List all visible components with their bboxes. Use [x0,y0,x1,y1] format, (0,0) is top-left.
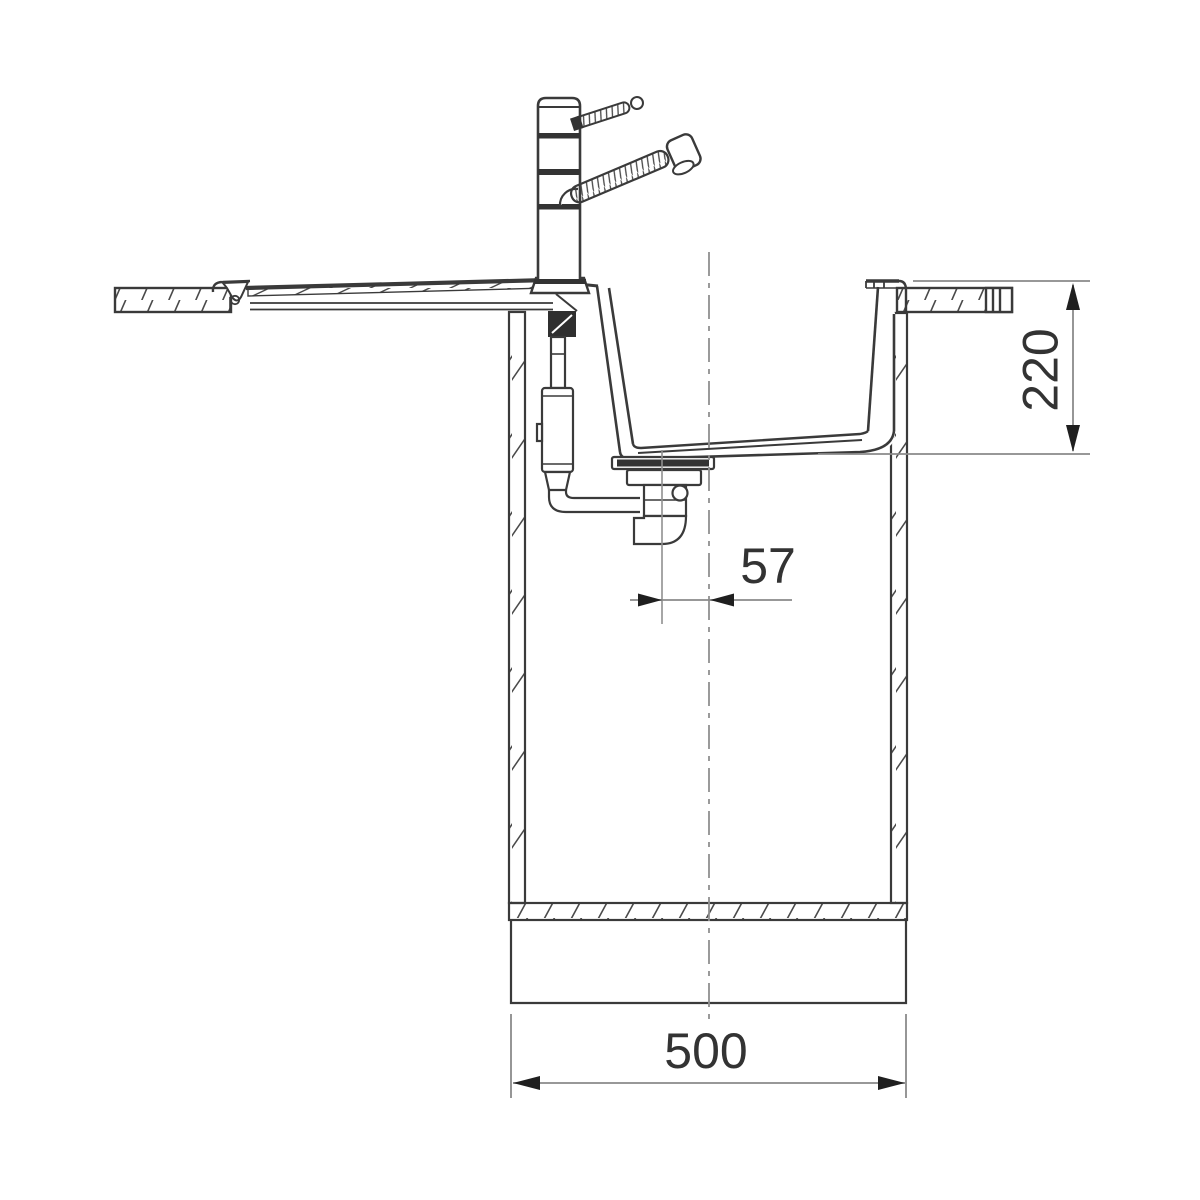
dimension-label-width: 500 [664,1023,747,1079]
lever-tip [631,97,643,109]
hose-elbow [549,490,640,512]
dimension-label-drain-offset: 57 [740,538,796,594]
faucet-shank [556,294,577,311]
dimension-drain-offset-57: 57 [630,538,796,607]
faucet [531,97,704,293]
trap-elbow [634,516,686,544]
arrow-down [1066,425,1080,452]
trap-knob [673,486,688,501]
arrow-left [710,594,734,607]
cabinet-bottom-shelf [509,903,907,920]
technical-drawing-page: 220 57 500 [0,0,1200,1200]
arrow-right [878,1076,905,1090]
drain-assembly [612,457,714,544]
sink-section-drawing: 220 57 500 [0,0,1200,1200]
arrow-left [513,1076,540,1090]
dimension-width-500: 500 [511,1014,906,1098]
arrow-right [638,594,662,607]
countertop-right-section [897,288,1012,312]
hose-neck [551,337,565,388]
sink-bowl-body [596,285,895,463]
arrow-up [1066,283,1080,310]
dimension-label-depth: 220 [1013,328,1069,411]
faucet-spout [569,149,671,205]
hose-weight [542,388,573,472]
cabinet-left-wall [509,312,525,903]
